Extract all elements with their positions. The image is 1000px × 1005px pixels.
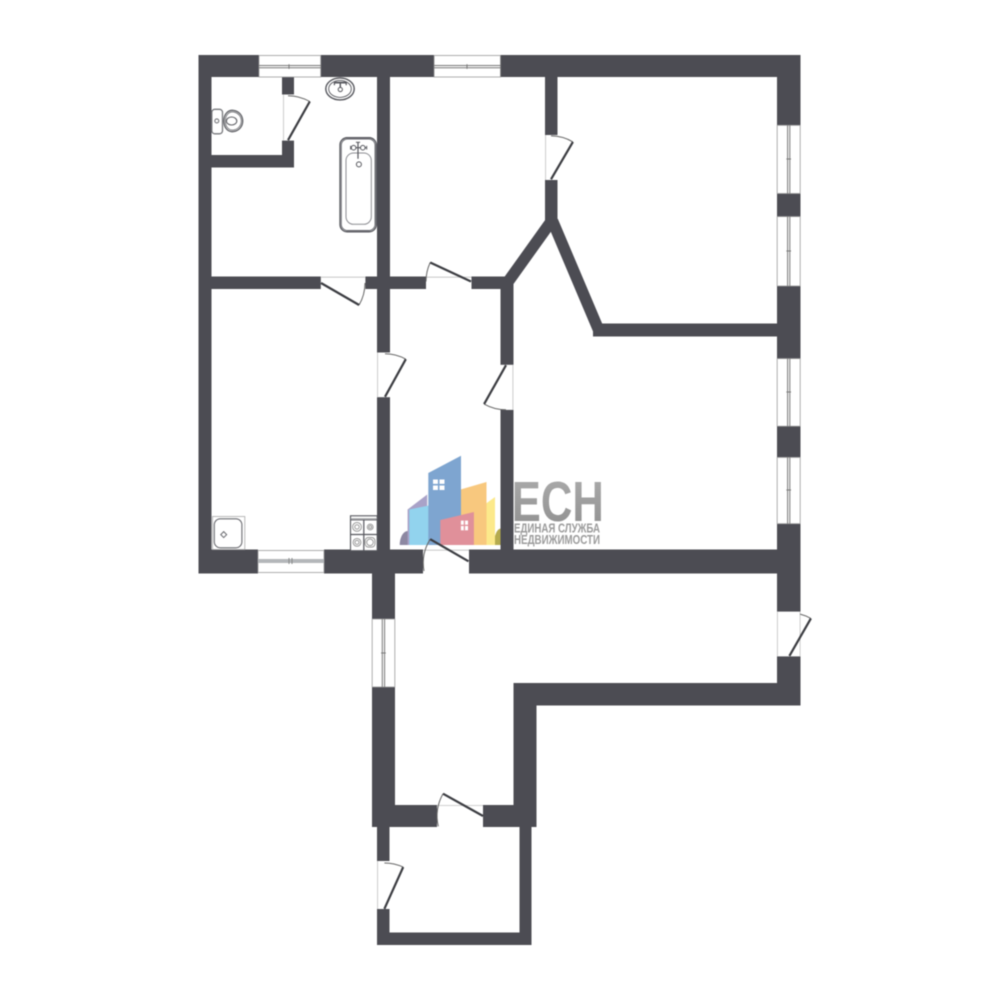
svg-text:НЕДВИЖИМОСТИ: НЕДВИЖИМОСТИ	[514, 533, 600, 547]
